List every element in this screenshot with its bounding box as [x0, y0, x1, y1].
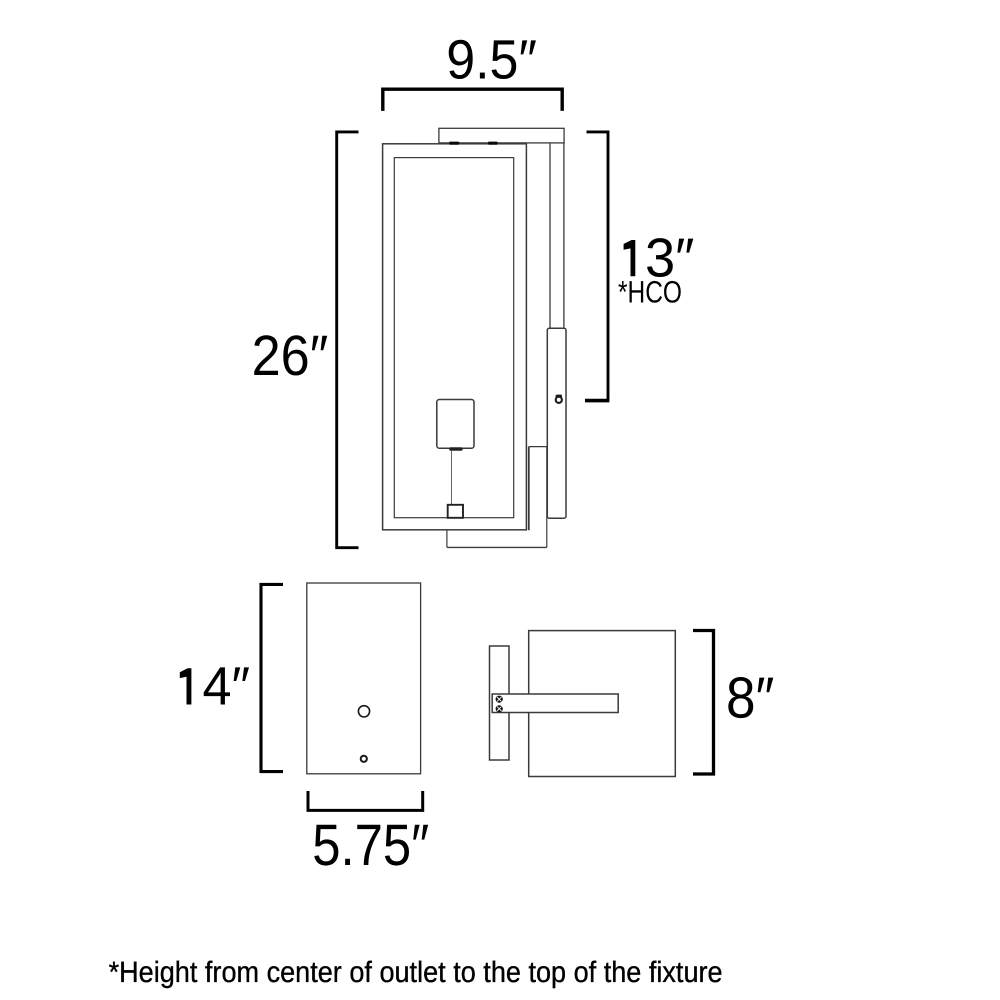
svg-text:8″: 8″: [726, 665, 774, 730]
svg-text:5.75″: 5.75″: [312, 813, 429, 878]
svg-text:*Height from center of outlet: *Height from center of outlet to the top…: [109, 956, 723, 989]
svg-text:26″: 26″: [252, 324, 329, 388]
svg-text:4″: 4″: [203, 657, 251, 717]
svg-text:9.5″: 9.5″: [446, 29, 537, 91]
svg-text:*HCO: *HCO: [618, 274, 682, 309]
